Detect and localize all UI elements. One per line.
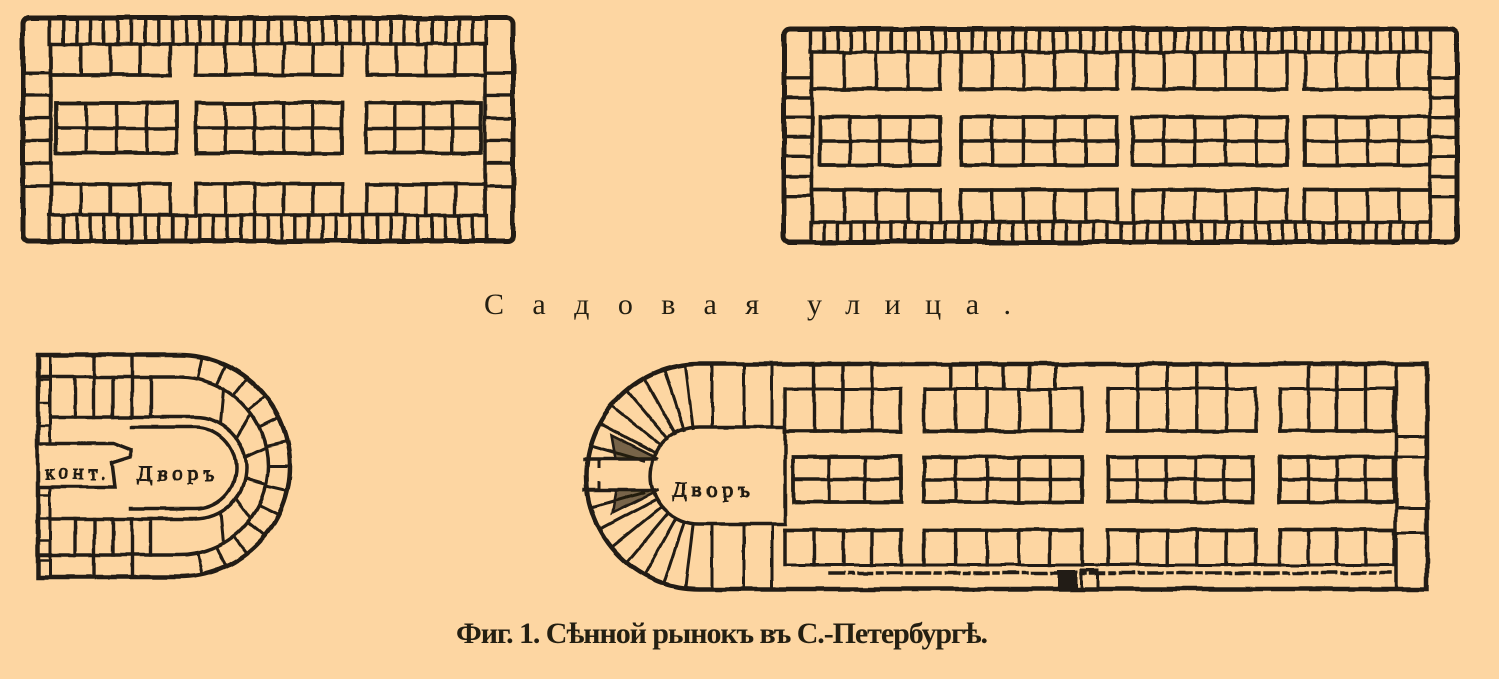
svg-text:Дворъ: Дворъ xyxy=(137,460,219,485)
svg-text:Дворъ: Дворъ xyxy=(672,477,754,502)
svg-text:конт.: конт. xyxy=(45,462,110,484)
svg-text:Фиг. 1. Сѣнной рынокъ въ С.-Пе: Фиг. 1. Сѣнной рынокъ въ С.-Петербургѣ. xyxy=(456,617,988,650)
